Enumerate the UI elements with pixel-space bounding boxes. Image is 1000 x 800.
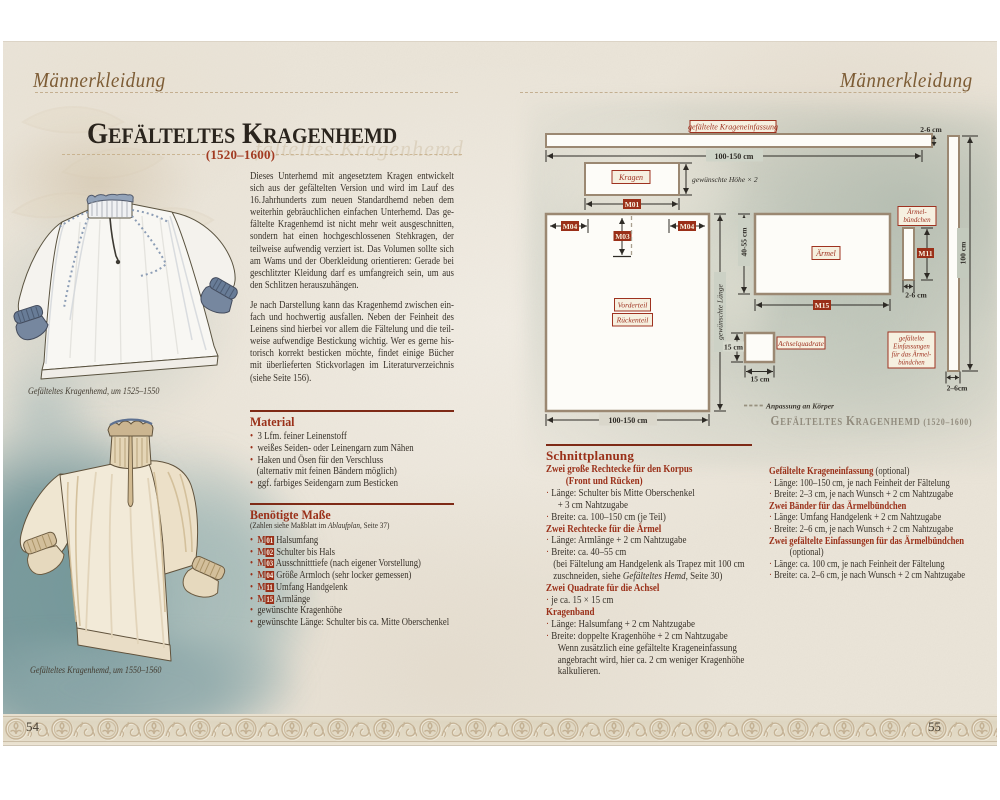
svg-text:bündchen: bündchen [898,360,925,367]
svg-text:100 cm: 100 cm [959,241,968,264]
svg-text:gewünschte Höhe × 2: gewünschte Höhe × 2 [692,175,758,184]
svg-text:gefältelte Krageneinfassung: gefältelte Krageneinfassung [688,123,778,132]
svg-text:M15: M15 [815,301,830,310]
svg-text:für das Ärmel-: für das Ärmel- [892,352,932,359]
svg-text:M04: M04 [563,222,578,231]
svg-text:gewünschte Länge: gewünschte Länge [716,284,725,340]
svg-text:Achselquadrate: Achselquadrate [777,339,825,348]
svg-text:Anpassung an Körper: Anpassung an Körper [765,402,834,411]
svg-text:100-150 cm: 100-150 cm [715,152,754,161]
svg-text:100-150 cm: 100-150 cm [609,416,648,425]
svg-text:40-55 cm: 40-55 cm [740,227,749,257]
svg-text:Vorderteil: Vorderteil [618,301,648,310]
svg-text:2–6cm: 2–6cm [947,384,969,393]
svg-text:M04: M04 [680,222,695,231]
svg-text:2-6 cm: 2-6 cm [905,291,927,300]
svg-text:15 cm: 15 cm [724,343,744,352]
svg-text:Ärmel: Ärmel [815,249,836,258]
svg-text:gefältelte: gefältelte [899,336,924,343]
svg-text:M11: M11 [918,249,932,258]
svg-text:M01: M01 [625,200,640,209]
svg-text:2-6 cm: 2-6 cm [920,125,942,134]
svg-text:Rückenteil: Rückenteil [616,316,649,325]
svg-text:Kragen: Kragen [618,173,643,182]
svg-text:bündchen: bündchen [903,216,931,224]
svg-text:Einfassungen: Einfassungen [892,344,930,351]
svg-text:Ärmel-: Ärmel- [906,208,927,216]
svg-text:M03: M03 [615,232,630,241]
svg-text:15 cm: 15 cm [751,375,771,384]
